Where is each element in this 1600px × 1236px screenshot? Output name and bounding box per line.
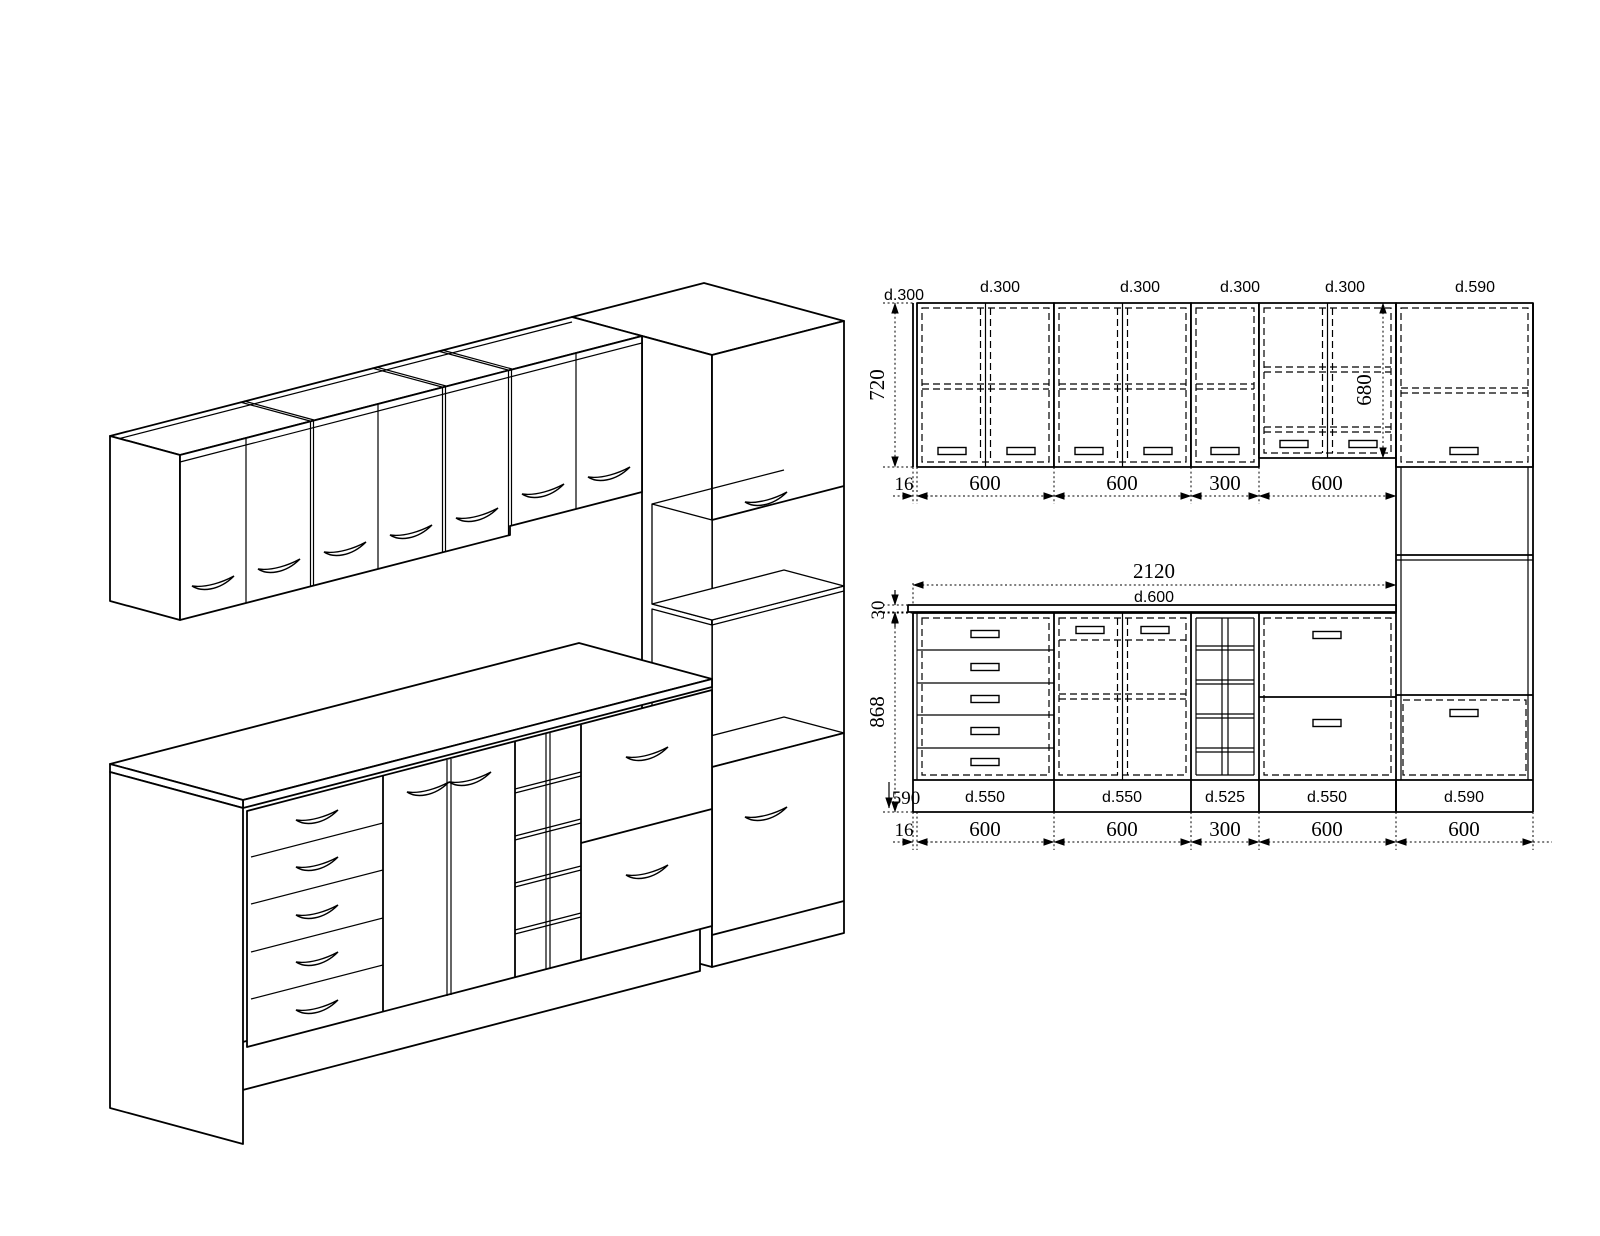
- unit-depth-label: d.590: [1444, 789, 1484, 806]
- dim-text-600: 600: [1106, 817, 1138, 841]
- unit-depth-label: d.525: [1205, 789, 1245, 806]
- countertop-section: [908, 605, 1396, 612]
- handle-icon: [971, 696, 999, 703]
- handle-icon: [938, 448, 966, 455]
- dim-text-720: 720: [865, 369, 889, 401]
- depth-label: d.590: [1455, 279, 1495, 296]
- handle-icon: [1313, 632, 1341, 639]
- dim-text-2120: 2120: [1133, 559, 1175, 583]
- depth-label: d.300: [884, 287, 924, 304]
- handle-icon: [1007, 448, 1035, 455]
- dim-30: 30: [868, 590, 908, 627]
- dim-590: 590: [889, 782, 920, 809]
- handle-icon: [1076, 627, 1104, 634]
- dim-text-600: 600: [969, 817, 1001, 841]
- unit-depth-label: d.550: [1307, 789, 1347, 806]
- drawing-svg: d.300 d.300 d.300 d.300 d.300 d.590 720 …: [0, 0, 1600, 1236]
- wall-width-dims: 16 600 600 300 600: [893, 467, 1396, 504]
- handle-icon: [1313, 720, 1341, 727]
- handle-icon: [1280, 441, 1308, 448]
- handle-icon: [1141, 627, 1169, 634]
- handle-icon: [1144, 448, 1172, 455]
- unit-depth-label: d.550: [1102, 789, 1142, 806]
- handle-icon: [971, 664, 999, 671]
- depth-label: d.300: [1325, 279, 1365, 296]
- unit-depth-label: d.550: [965, 789, 1005, 806]
- dim-text-300: 300: [1209, 471, 1241, 495]
- handle-icon: [1075, 448, 1103, 455]
- dim-text-600: 600: [1448, 817, 1480, 841]
- handle-icon: [971, 759, 999, 766]
- handle-icon: [1211, 448, 1239, 455]
- dim-text-600: 600: [1311, 471, 1343, 495]
- isometric-view: [110, 283, 844, 1144]
- wall-cab-300: [1191, 303, 1259, 467]
- iso-wall-cabinets: [110, 317, 642, 620]
- elev-drawer-unit: [917, 618, 1054, 775]
- depth-label: d.300: [1120, 279, 1160, 296]
- handle-icon: [1349, 441, 1377, 448]
- dim-text-600: 600: [969, 471, 1001, 495]
- handle-icon: [971, 728, 999, 735]
- dim-720: 720: [865, 303, 913, 467]
- elev-big-drawer-unit: [1259, 618, 1396, 775]
- dim-text-30: 30: [868, 601, 889, 620]
- depth-label: d.300: [980, 279, 1020, 296]
- dim-2120: 2120 d.600: [913, 559, 1396, 606]
- dim-text-16: 16: [895, 820, 914, 841]
- countertop-depth-label: d.600: [1134, 589, 1174, 606]
- base-end-panel: [110, 772, 243, 1144]
- dim-text-16: 16: [895, 474, 914, 495]
- depth-label: d.300: [1220, 279, 1260, 296]
- wall-end-panel: [110, 436, 180, 620]
- wall-elevation: d.300 d.300 d.300 d.300 d.300 d.590 720 …: [865, 279, 1533, 504]
- dim-text-590: 590: [892, 788, 921, 809]
- dim-text-868: 868: [865, 696, 889, 728]
- tall-front-face: [712, 321, 844, 967]
- elev-door-unit: [1059, 613, 1186, 780]
- kitchen-technical-drawing: d.300 d.300 d.300 d.300 d.300 d.590 720 …: [0, 0, 1600, 1236]
- dim-text-600: 600: [1106, 471, 1138, 495]
- wall-tall-top: [1396, 303, 1533, 467]
- dim-text-300: 300: [1209, 817, 1241, 841]
- handle-icon: [1450, 710, 1478, 717]
- base-width-dims: 16 600 600 300 600 600: [893, 812, 1552, 850]
- base-elevation: 2120 d.600 30 868 590: [865, 559, 1552, 850]
- handle-icon: [1450, 448, 1478, 455]
- elev-wine-rack: [1196, 618, 1254, 775]
- handle-icon: [971, 631, 999, 638]
- dim-text-600: 600: [1311, 817, 1343, 841]
- dim-text-680: 680: [1352, 374, 1376, 406]
